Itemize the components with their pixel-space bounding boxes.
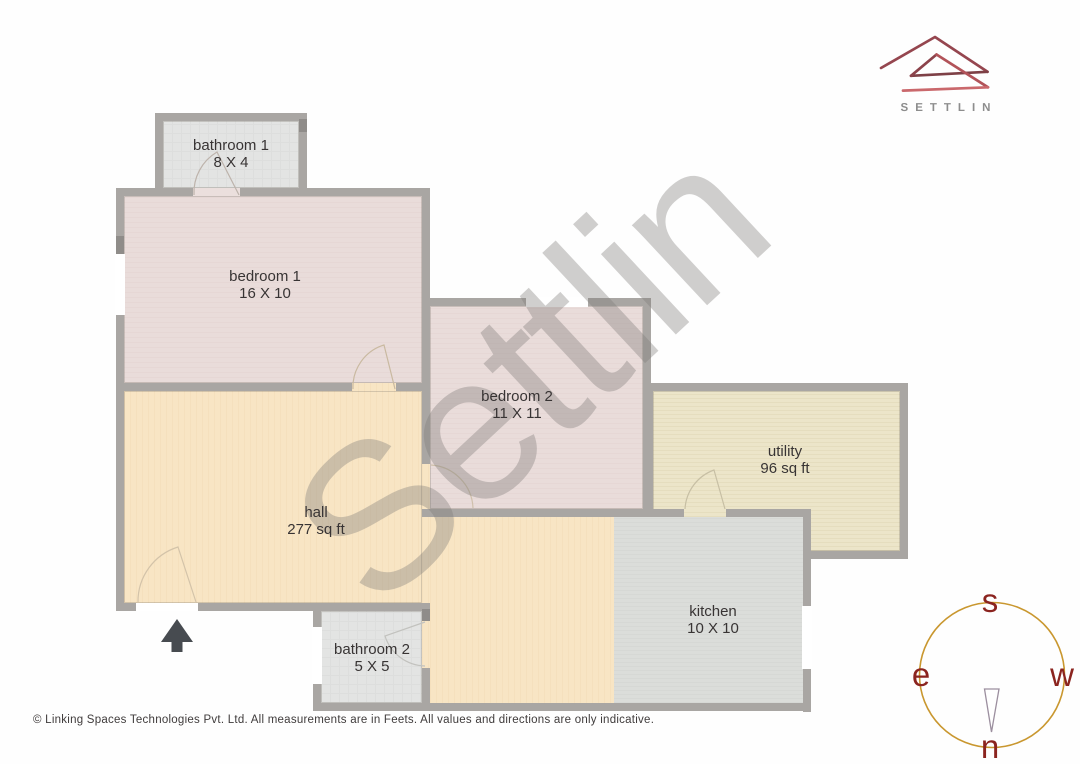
svg-text:n: n — [981, 728, 999, 764]
svg-text:e: e — [912, 656, 930, 693]
svg-text:SETTLIN: SETTLIN — [901, 102, 998, 114]
svg-text:s: s — [982, 592, 999, 619]
svg-text:w: w — [1049, 656, 1074, 693]
